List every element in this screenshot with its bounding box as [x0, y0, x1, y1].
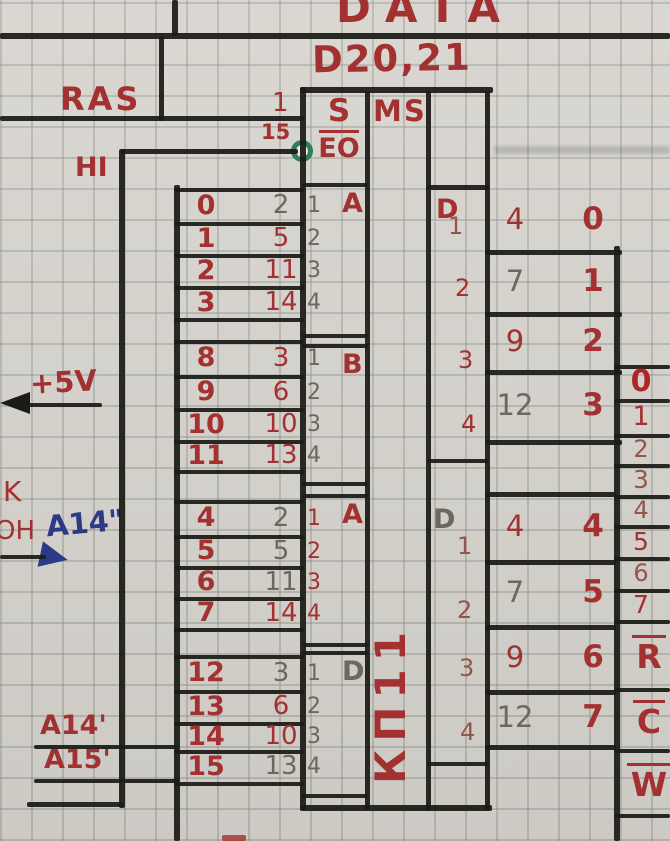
channel-number: 3 — [304, 410, 330, 440]
input-pin-number: 5 — [258, 222, 304, 254]
bus-signal-label: C — [628, 688, 670, 749]
input-pin-number: 3 — [258, 340, 304, 375]
input-signal-label: 6 — [178, 566, 234, 597]
hi-label: HI — [75, 154, 108, 181]
input-signal-label: 1 — [178, 222, 234, 254]
output-pin-number: 12 — [493, 370, 537, 440]
group-label: A — [342, 501, 368, 531]
input-signal-label: 2 — [178, 254, 234, 286]
ras-label: RAS — [60, 83, 141, 115]
input-signal-label: 11 — [178, 440, 234, 470]
channel-number: 4 — [304, 599, 330, 628]
zone-note-label: A14" — [45, 506, 125, 542]
a14-label: A14' — [40, 712, 107, 739]
wire — [300, 87, 493, 93]
wire — [614, 814, 670, 818]
bus-signal-text: C — [633, 700, 665, 738]
wire — [427, 185, 489, 190]
chip-ref-label: D20,21 — [312, 39, 472, 79]
wire — [427, 459, 489, 463]
input-pin-number: 6 — [258, 690, 304, 722]
wire — [302, 651, 368, 655]
output-group-label: D — [436, 196, 460, 226]
wire — [300, 805, 492, 811]
enable-input-label: EO — [313, 135, 365, 162]
output-signal-label: 7 — [572, 690, 614, 745]
strobe-enable-labels: S EO — [313, 96, 365, 162]
wire — [34, 745, 178, 749]
input-signal-label: 3 — [178, 286, 234, 318]
input-signal-label: 8 — [178, 340, 234, 375]
output-channel-number: 2 — [457, 598, 479, 626]
output-channel-number: 4 — [460, 720, 482, 748]
channel-number: 2 — [304, 224, 330, 254]
zone-label: ОН — [0, 518, 35, 544]
input-pin-number: 13 — [258, 750, 304, 782]
channel-number: 1 — [304, 190, 330, 222]
wire — [119, 149, 125, 808]
wire — [302, 794, 368, 798]
bus-number: 0 — [618, 365, 664, 399]
chip-name-label: КП11 — [370, 606, 422, 802]
bus-number: 6 — [618, 557, 664, 589]
output-signal-label: 6 — [572, 625, 614, 690]
output-channel-number: 3 — [458, 348, 480, 376]
channel-number: 3 — [304, 256, 330, 286]
zone-k-label: K — [3, 478, 21, 506]
wire — [302, 334, 368, 338]
input-signal-label: 14 — [178, 722, 234, 750]
output-pin-number: 9 — [493, 312, 537, 370]
multiplexer-type-label: MS — [373, 97, 427, 126]
channel-number: 1 — [304, 342, 330, 375]
output-group-label: D — [433, 506, 457, 536]
a15-label: A15' — [44, 746, 111, 773]
output-signal-label: 5 — [572, 560, 614, 625]
wire — [485, 440, 622, 445]
bus-signal-label: W — [628, 749, 670, 814]
channel-number: 3 — [304, 568, 330, 597]
input-signal-label: 0 — [178, 188, 234, 222]
input-pin-number: 6 — [258, 375, 304, 408]
wire — [302, 482, 368, 486]
input-signal-label: 12 — [178, 655, 234, 690]
output-signal-label: 0 — [572, 188, 614, 250]
bus-number: 2 — [618, 434, 664, 464]
output-pin-number: 9 — [493, 625, 537, 690]
output-signal-label: 3 — [572, 370, 614, 440]
input-pin-number: 14 — [258, 597, 304, 628]
group-label: B — [342, 351, 368, 381]
channel-number: 2 — [304, 692, 330, 722]
input-signal-label: 13 — [178, 690, 234, 722]
input-signal-label: 5 — [178, 535, 234, 566]
bus-signal-label: R — [628, 620, 670, 688]
channel-number: 4 — [304, 442, 330, 470]
channel-number: 1 — [304, 502, 330, 535]
output-channel-number: 4 — [461, 412, 483, 440]
wire — [302, 643, 368, 647]
output-channel-number: 1 — [457, 534, 479, 562]
output-signal-label: 4 — [572, 492, 614, 560]
wire — [174, 628, 304, 632]
output-channel-number: 2 — [455, 276, 477, 304]
channel-number: 2 — [304, 537, 330, 566]
output-pin-number: 7 — [493, 560, 537, 625]
select-input-label: S — [319, 96, 359, 133]
input-pin-number: 5 — [258, 535, 304, 566]
input-pin-number: 3 — [258, 655, 304, 690]
input-pin-number: 10 — [258, 722, 304, 750]
channel-number: 4 — [304, 288, 330, 318]
bus-signal-text: W — [627, 763, 670, 801]
supply-label: +5V — [29, 366, 97, 398]
wire — [10, 403, 102, 407]
wire — [174, 470, 304, 474]
input-signal-label: 4 — [178, 500, 234, 535]
output-signal-label: 2 — [572, 312, 614, 370]
input-pin-number: 2 — [258, 188, 304, 222]
pin-1-label: 1 — [272, 90, 289, 116]
output-channel-number: 3 — [459, 656, 481, 684]
wire — [426, 91, 431, 810]
wire — [302, 183, 368, 187]
output-pin-number: 4 — [493, 492, 537, 560]
channel-number: 4 — [304, 752, 330, 782]
wire — [27, 802, 124, 807]
bus-number: 4 — [618, 495, 664, 525]
bus-signal-text: R — [632, 635, 665, 673]
channel-number: 1 — [304, 657, 330, 690]
output-pin-number: 7 — [493, 250, 537, 312]
pin-15-label: 15 — [261, 122, 290, 143]
group-label: A — [342, 190, 368, 220]
bus-number: 3 — [618, 464, 664, 495]
wire — [427, 762, 489, 766]
input-pin-number: 11 — [258, 254, 304, 286]
input-signal-label: 9 — [178, 375, 234, 408]
input-pin-number: 2 — [258, 500, 304, 535]
input-pin-number: 14 — [258, 286, 304, 318]
channel-number: 3 — [304, 724, 330, 750]
wire — [121, 149, 298, 154]
stray-mark — [222, 835, 246, 841]
group-label: D — [342, 658, 368, 688]
wire — [0, 555, 46, 559]
bus-number: 7 — [618, 589, 664, 620]
output-pin-number: 4 — [493, 188, 537, 250]
channel-number: 2 — [304, 377, 330, 408]
input-signal-label: 7 — [178, 597, 234, 628]
input-pin-number: 10 — [258, 408, 304, 440]
output-pin-number: 12 — [493, 690, 537, 745]
wire — [159, 37, 164, 121]
input-signal-label: 15 — [178, 750, 234, 782]
wire — [172, 0, 178, 36]
wire — [174, 782, 304, 786]
bus-number: 5 — [618, 525, 664, 557]
eraser-smudge — [494, 146, 670, 154]
wire — [174, 318, 304, 322]
wire — [485, 91, 490, 810]
wire — [302, 494, 368, 498]
wire — [0, 33, 670, 39]
input-pin-number: 13 — [258, 440, 304, 470]
wire — [0, 116, 304, 121]
input-signal-label: 10 — [178, 408, 234, 440]
input-pin-number: 11 — [258, 566, 304, 597]
wire — [34, 779, 178, 783]
bus-number: 1 — [618, 399, 664, 434]
bus-title: DATA — [336, 0, 514, 29]
wire — [485, 745, 616, 750]
output-signal-label: 1 — [572, 250, 614, 312]
schematic-page: DATA D20,21 RAS 1 15 HI S EO MS +5V K ОН… — [0, 0, 670, 841]
